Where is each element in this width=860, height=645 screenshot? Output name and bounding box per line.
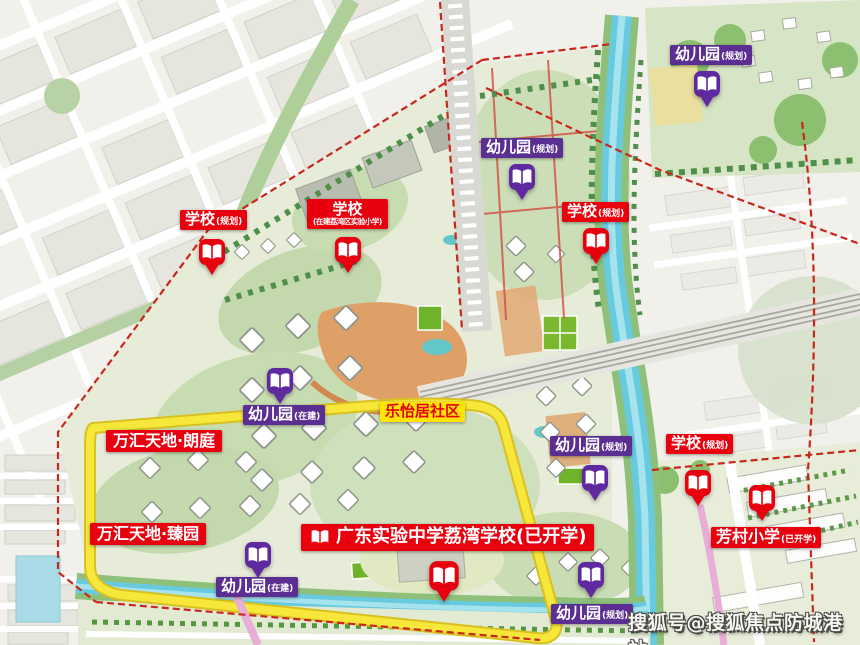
pin-guangdong-experimental-school: [427, 560, 461, 603]
pin-school-planned-west: [197, 238, 227, 276]
pin-kindergarten-planned-east: [580, 464, 610, 502]
label-text: 学校: [671, 435, 701, 452]
label-school-planned-north: 学校(规划): [562, 202, 629, 222]
label-kindergarten-planned-northeast: 幼儿园(规划): [670, 45, 752, 65]
park-northeast: [645, 0, 860, 178]
pin-kindergarten-planned-south: [576, 561, 606, 599]
book-icon: [309, 529, 331, 545]
label-guangdong-experimental-school: 广东实验中学荔湾学校(已开学): [301, 524, 594, 551]
label-subtext: (在建): [267, 584, 293, 594]
label-subtext: (规划): [602, 611, 628, 621]
pin-school-under-construction-west: [333, 236, 363, 274]
label-text: 幼儿园: [675, 46, 720, 63]
label-kindergarten-under-construction-center: 幼儿园(在建): [243, 405, 325, 425]
label-text: 万汇天地·臻园: [97, 525, 199, 543]
label-school-planned-east: 学校(规划): [666, 434, 733, 454]
sohu-watermark: 搜狐号@搜狐焦点防城港站: [628, 608, 860, 645]
label-text: 幼儿园: [486, 139, 531, 156]
label-subtext: (规划): [598, 209, 624, 219]
label-subtext: (规划): [532, 145, 558, 155]
label-kindergarten-planned-north: 幼儿园(规划): [481, 138, 563, 158]
label-subtext: (已开学): [781, 535, 816, 545]
label-wanhui-tiandi-langting: 万汇天地·朗庭: [106, 430, 222, 452]
label-kindergarten-under-construction-southwest: 幼儿园(在建): [216, 577, 298, 597]
label-text: 广东实验中学荔湾学校(已开学): [336, 527, 586, 548]
label-school-under-construction-west: 学校(在建荔湾区实验小学): [307, 199, 388, 229]
label-kindergarten-planned-south: 幼儿园(规划): [551, 604, 633, 624]
label-subtext: (规划): [721, 52, 747, 62]
label-fangcun-primary-school: 芳村小学(已开学): [711, 527, 821, 548]
label-subtext: (规划): [702, 441, 728, 451]
label-leyiju-community: 乐怡居社区: [380, 402, 465, 422]
pin-kindergarten-under-construction-southwest: [243, 541, 273, 579]
pin-kindergarten-planned-north: [507, 163, 537, 201]
label-text: 万汇天地·朗庭: [113, 432, 215, 450]
planning-map-image: 幼儿园(规划) 幼儿园(规划) 学校(规划) 学校(规划) 学校(在建荔湾区实验…: [0, 0, 860, 645]
label-wanhui-tiandi-zhenyuan: 万汇天地·臻园: [90, 523, 206, 545]
label-text: 学校: [332, 201, 362, 218]
label-text: 芳村小学: [716, 528, 780, 546]
label-text: 幼儿园: [555, 437, 600, 454]
label-subtext: (在建): [294, 412, 320, 422]
pin-school-planned-north: [581, 227, 611, 265]
label-subtext: (规划): [216, 217, 242, 227]
label-school-planned-west: 学校(规划): [180, 210, 247, 230]
label-subtext: (在建荔湾区实验小学): [313, 218, 382, 227]
label-text: 幼儿园: [556, 605, 601, 622]
pin-fangcun-primary-school: [747, 484, 777, 522]
pin-school-planned-east: [683, 469, 713, 507]
pin-kindergarten-under-construction-center: [265, 367, 295, 405]
label-text: 学校: [567, 203, 597, 220]
label-text: 乐怡居社区: [385, 403, 460, 420]
label-kindergarten-planned-east: 幼儿园(规划): [550, 436, 632, 456]
label-text: 幼儿园: [248, 406, 293, 423]
label-subtext: (规划): [601, 443, 627, 453]
label-text: 幼儿园: [221, 578, 266, 595]
pin-kindergarten-planned-northeast: [692, 70, 722, 108]
label-text: 学校: [185, 211, 215, 228]
